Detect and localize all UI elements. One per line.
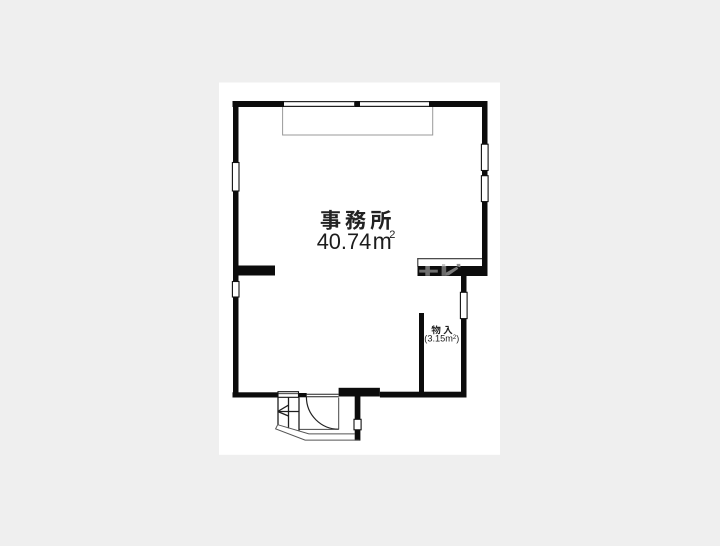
svg-text:2: 2 bbox=[389, 229, 395, 241]
svg-text:40.74: 40.74 bbox=[317, 229, 372, 254]
